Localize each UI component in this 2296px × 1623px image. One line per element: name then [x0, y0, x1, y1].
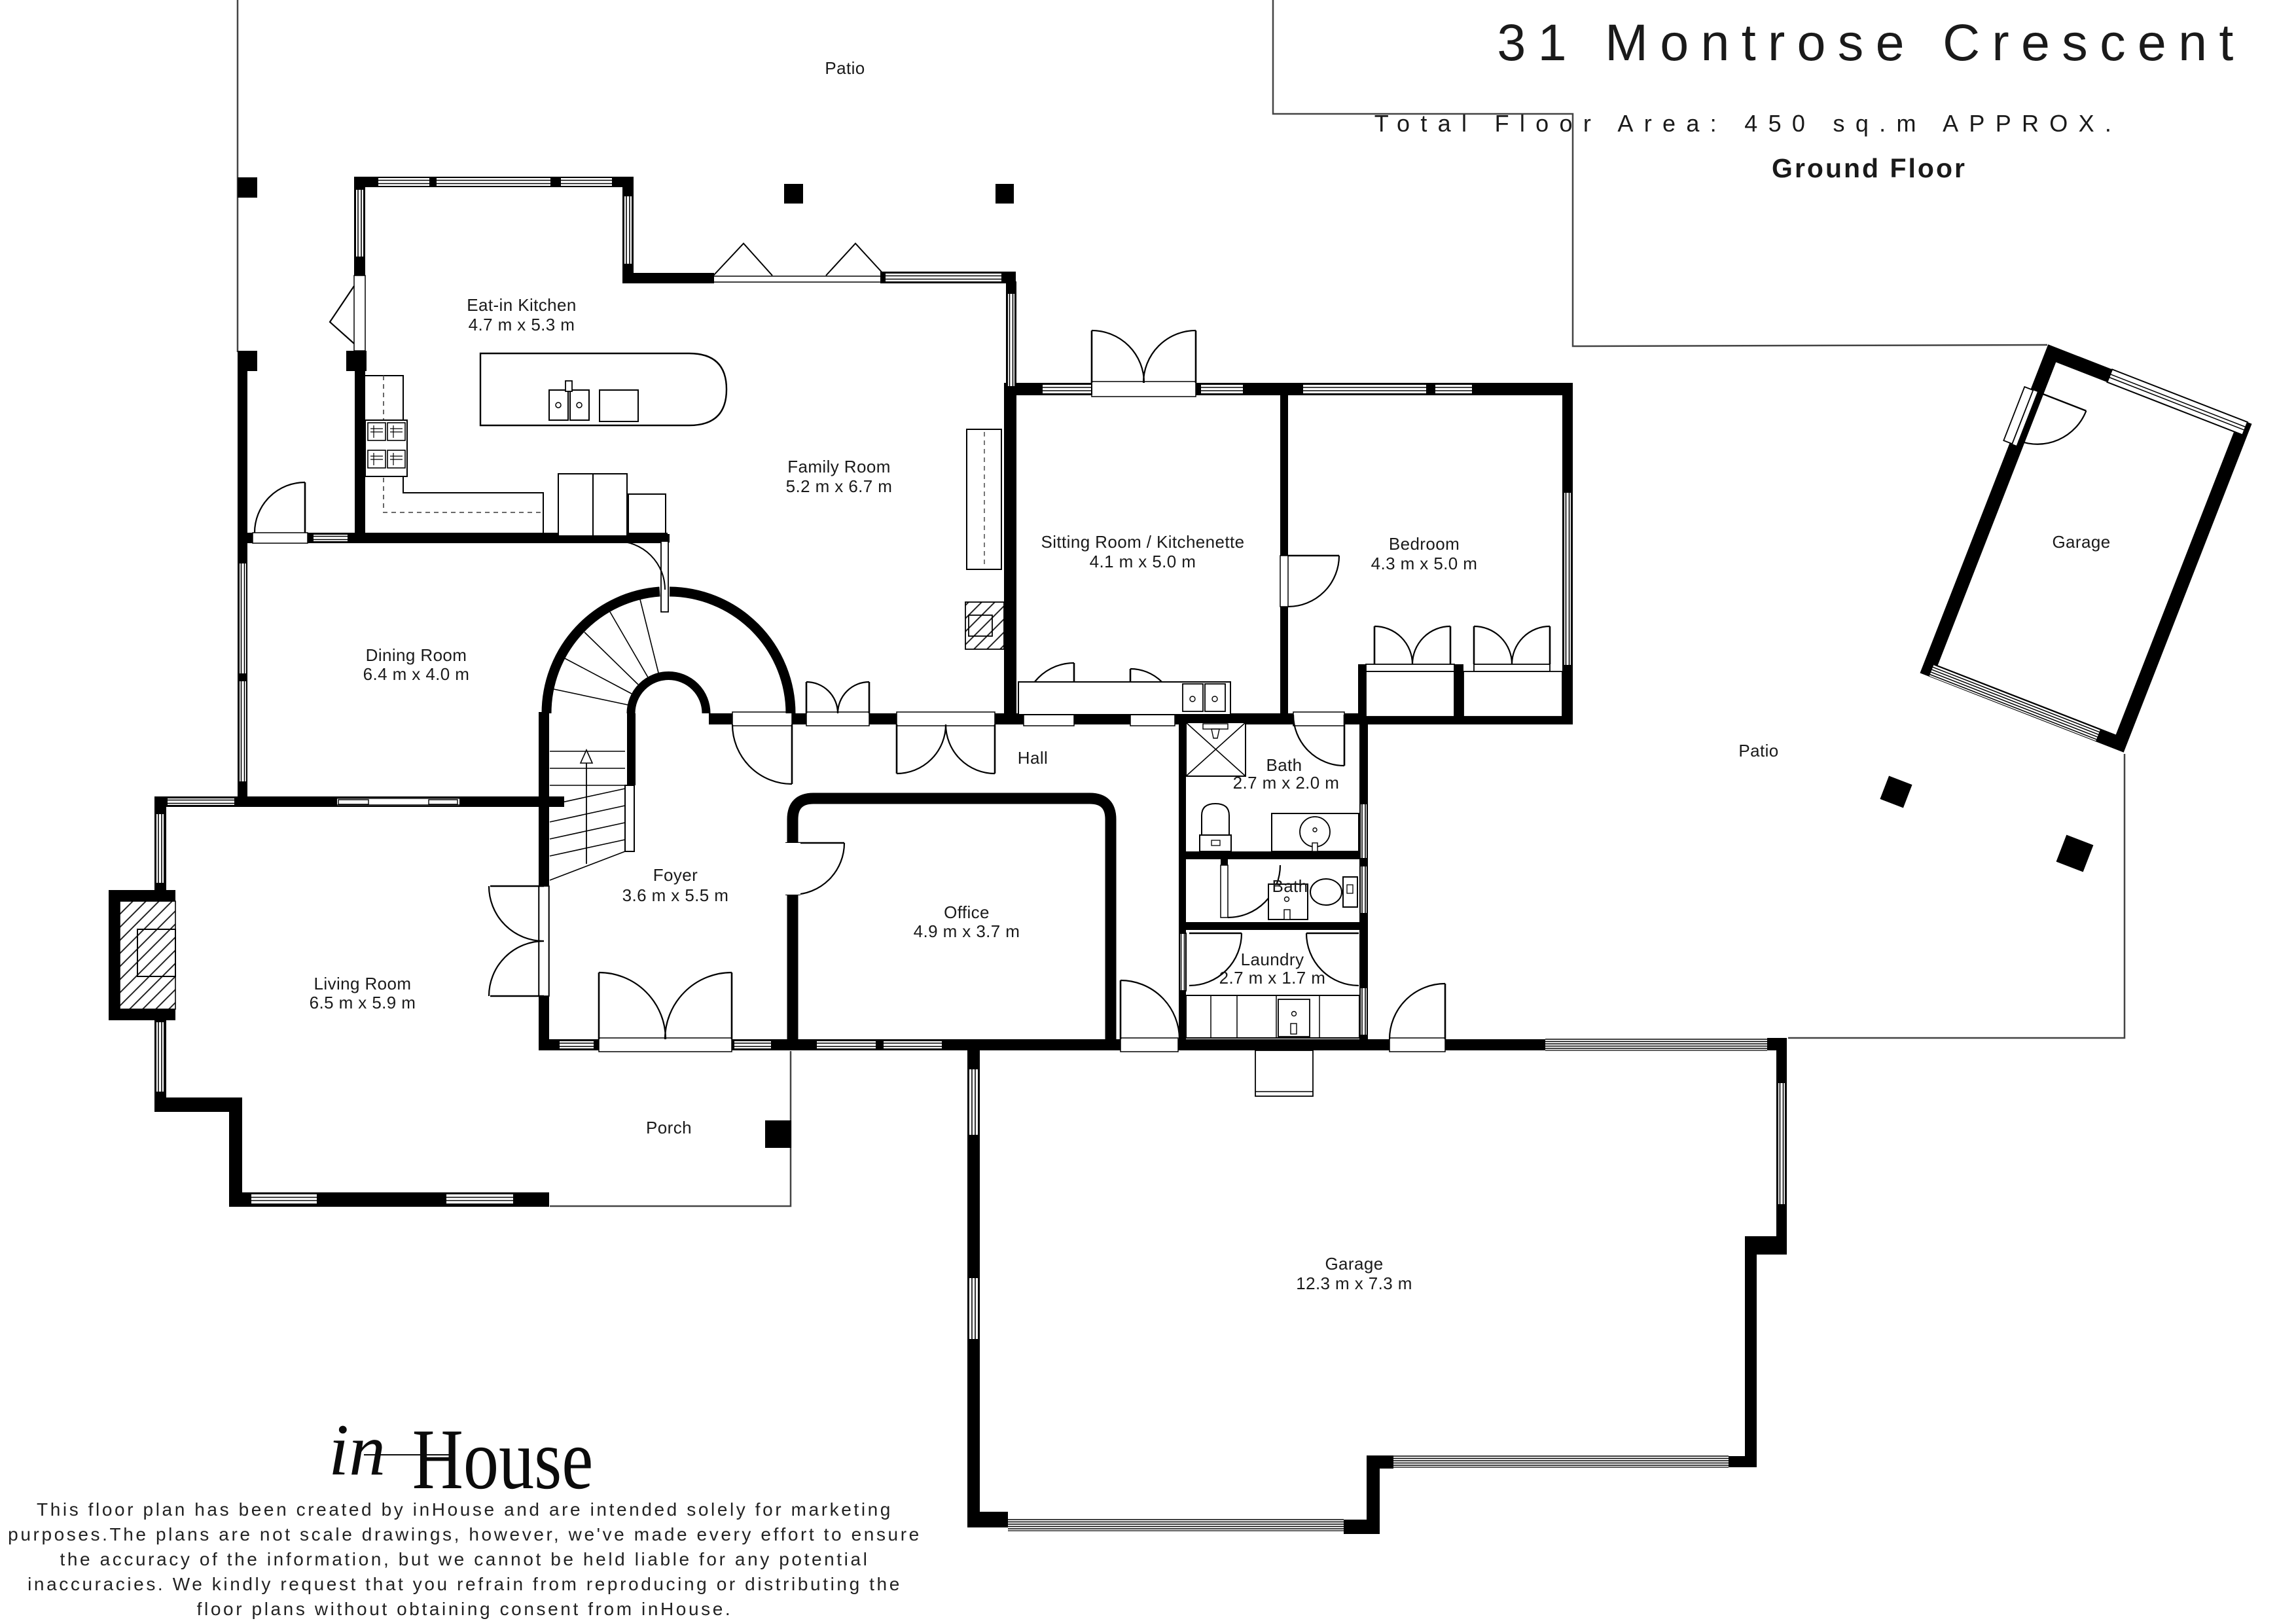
svg-text:floor plans without obtaining: floor plans without obtaining consent fr…: [197, 1599, 733, 1619]
svg-text:31 Montrose Crescent: 31 Montrose Crescent: [1497, 13, 2245, 71]
svg-text:This floor plan has been creat: This floor plan has been created by inHo…: [37, 1499, 893, 1520]
svg-text:Patio: Patio: [825, 58, 865, 78]
svg-text:6.5 m x 5.9 m: 6.5 m x 5.9 m: [310, 993, 416, 1012]
svg-text:inaccuracies. We kindly reques: inaccuracies. We kindly request that you…: [27, 1574, 902, 1594]
svg-text:Dining Room: Dining Room: [366, 645, 467, 665]
svg-text:Garage: Garage: [1325, 1254, 1383, 1274]
svg-text:4.9 m x 3.7 m: 4.9 m x 3.7 m: [914, 921, 1020, 941]
svg-text:6.4 m x 4.0 m: 6.4 m x 4.0 m: [363, 664, 470, 684]
svg-text:Hall: Hall: [1018, 748, 1048, 768]
svg-text:Foyer: Foyer: [653, 865, 698, 885]
svg-text:Office: Office: [944, 902, 990, 922]
svg-text:Sitting Room / Kitchenette: Sitting Room / Kitchenette: [1041, 532, 1245, 552]
svg-text:Total Floor Area: 450 sq.m APP: Total Floor Area: 450 sq.m APPROX.: [1374, 110, 2122, 137]
svg-text:Bath: Bath: [1266, 755, 1302, 775]
svg-text:4.7 m x 5.3 m: 4.7 m x 5.3 m: [469, 315, 575, 334]
svg-text:4.1 m x 5.0 m: 4.1 m x 5.0 m: [1090, 552, 1196, 571]
svg-text:2.7 m x 2.0 m: 2.7 m x 2.0 m: [1233, 773, 1340, 793]
svg-text:12.3 m x 7.3 m: 12.3 m x 7.3 m: [1296, 1274, 1412, 1293]
svg-text:Patio: Patio: [1738, 741, 1778, 760]
svg-text:House: House: [412, 1412, 594, 1508]
svg-text:Living Room: Living Room: [314, 974, 412, 993]
svg-text:Bedroom: Bedroom: [1389, 534, 1460, 554]
svg-text:Ground Floor: Ground Floor: [1772, 153, 1967, 183]
svg-text:the accuracy of the informatio: the accuracy of the information, but we …: [60, 1549, 870, 1569]
svg-text:Porch: Porch: [646, 1118, 692, 1137]
svg-text:Family Room: Family Room: [787, 457, 891, 476]
svg-text:Garage: Garage: [2052, 532, 2110, 552]
svg-text:Eat-in Kitchen: Eat-in Kitchen: [467, 295, 576, 315]
svg-text:Bath: Bath: [1272, 876, 1308, 896]
svg-text:in: in: [329, 1410, 386, 1491]
svg-text:2.7 m x 1.7 m: 2.7 m x 1.7 m: [1219, 968, 1326, 988]
svg-text:3.6 m x 5.5 m: 3.6 m x 5.5 m: [622, 885, 729, 905]
svg-text:Laundry: Laundry: [1241, 950, 1304, 969]
svg-text:5.2 m x 6.7 m: 5.2 m x 6.7 m: [786, 476, 893, 496]
svg-text:4.3 m x 5.0 m: 4.3 m x 5.0 m: [1371, 554, 1478, 573]
svg-text:purposes.The plans are not sca: purposes.The plans are not scale drawing…: [8, 1524, 922, 1544]
